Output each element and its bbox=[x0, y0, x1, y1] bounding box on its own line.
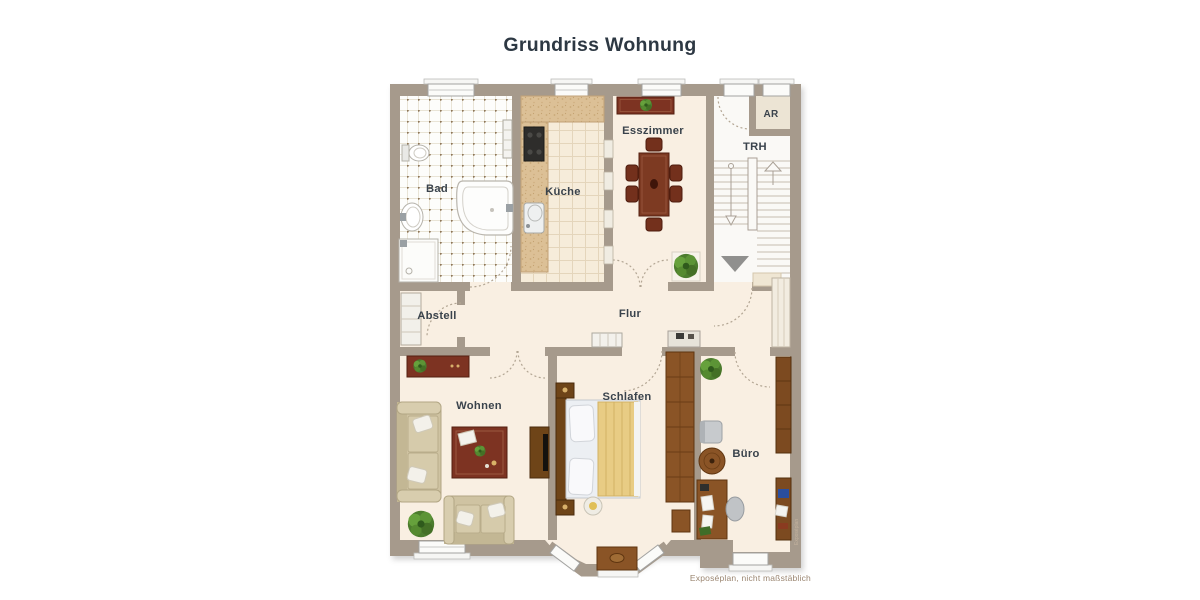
wardrobe bbox=[666, 352, 694, 502]
office-cabinet bbox=[775, 478, 791, 540]
hallway-builtin-closet bbox=[772, 278, 790, 347]
floorplan-drawing: Bad Küche Esszimmer AR TRH Abstell Flur … bbox=[0, 0, 1200, 600]
window-esszimmer bbox=[638, 79, 685, 96]
office-chair bbox=[726, 497, 744, 521]
bed-blanket bbox=[598, 402, 638, 496]
office-shelf bbox=[776, 357, 791, 453]
wall-ar-left bbox=[749, 96, 756, 129]
room-label-abstell: Abstell bbox=[417, 310, 456, 322]
kitchen-counter-top bbox=[521, 96, 604, 122]
dining-sideboard bbox=[617, 97, 674, 114]
stairs-guide-start bbox=[729, 164, 734, 169]
wall-flur-schlafen-1 bbox=[545, 347, 622, 356]
room-label-trh: TRH bbox=[743, 141, 767, 153]
bedroom-stool bbox=[584, 497, 602, 515]
office-round-table bbox=[699, 448, 725, 474]
dining-table bbox=[639, 153, 669, 216]
wall-flur-buero bbox=[770, 347, 790, 356]
desk-papers bbox=[702, 515, 713, 528]
bedroom-bench bbox=[672, 510, 690, 532]
window-trh-2 bbox=[759, 79, 794, 96]
floorplan-page: Grundriss Wohnung bbox=[0, 0, 1200, 600]
stairs-divider bbox=[748, 158, 757, 230]
sofa bbox=[397, 402, 441, 502]
room-label-flur: Flur bbox=[619, 308, 642, 320]
bed bbox=[556, 398, 640, 500]
living-plant bbox=[408, 511, 434, 537]
bathtub-tap bbox=[506, 204, 513, 212]
window-kueche bbox=[551, 79, 592, 96]
window-bad bbox=[424, 79, 478, 96]
wall-abstell-bottom bbox=[457, 337, 465, 347]
office-side-chair bbox=[700, 421, 722, 443]
bathtub bbox=[457, 181, 513, 235]
wall-ar-bottom bbox=[749, 129, 790, 136]
wall-mid-2 bbox=[511, 282, 613, 291]
sink-tap bbox=[400, 213, 406, 221]
dining-plant bbox=[672, 252, 700, 281]
coffee-table-rug bbox=[452, 427, 507, 478]
room-label-ar: AR bbox=[763, 109, 779, 120]
shower-head bbox=[400, 240, 407, 247]
stove bbox=[524, 127, 544, 161]
tv bbox=[543, 434, 548, 471]
bay-chest bbox=[597, 547, 637, 570]
office-plant bbox=[700, 358, 722, 380]
room-label-bad: Bad bbox=[426, 183, 448, 195]
window-trh-1 bbox=[720, 79, 758, 96]
wall-mid-1 bbox=[400, 282, 470, 291]
vertical-watermark-text: Exposéplan bbox=[794, 519, 800, 545]
room-label-buero: Büro bbox=[732, 448, 759, 460]
bathroom-radiator bbox=[503, 120, 512, 158]
bed-pillow bbox=[569, 405, 595, 442]
bed-pillow bbox=[568, 458, 594, 495]
room-label-wohnen: Wohnen bbox=[456, 400, 502, 412]
plan-disclaimer: Exposéplan, nicht maßstäblich bbox=[0, 573, 811, 583]
desk-papers bbox=[701, 495, 714, 510]
shower bbox=[399, 239, 438, 282]
room-label-kueche: Küche bbox=[545, 186, 581, 198]
wall-mid-3 bbox=[668, 282, 714, 291]
kitchen-sink bbox=[524, 203, 544, 233]
wall-esszimmer-trh bbox=[706, 84, 714, 291]
loveseat bbox=[444, 496, 514, 544]
room-label-esszimmer: Esszimmer bbox=[622, 125, 684, 137]
page-title: Grundriss Wohnung bbox=[0, 34, 1200, 57]
hallway-radiator bbox=[592, 333, 622, 347]
tv-cabinet bbox=[530, 427, 549, 478]
toilet bbox=[402, 145, 429, 161]
hallway-dresser bbox=[668, 331, 700, 347]
living-sideboard bbox=[407, 356, 469, 377]
window-buero bbox=[729, 553, 772, 571]
desk bbox=[697, 480, 727, 539]
wall-flur-wohnen bbox=[400, 347, 490, 356]
room-label-schlafen: Schlafen bbox=[602, 391, 651, 403]
